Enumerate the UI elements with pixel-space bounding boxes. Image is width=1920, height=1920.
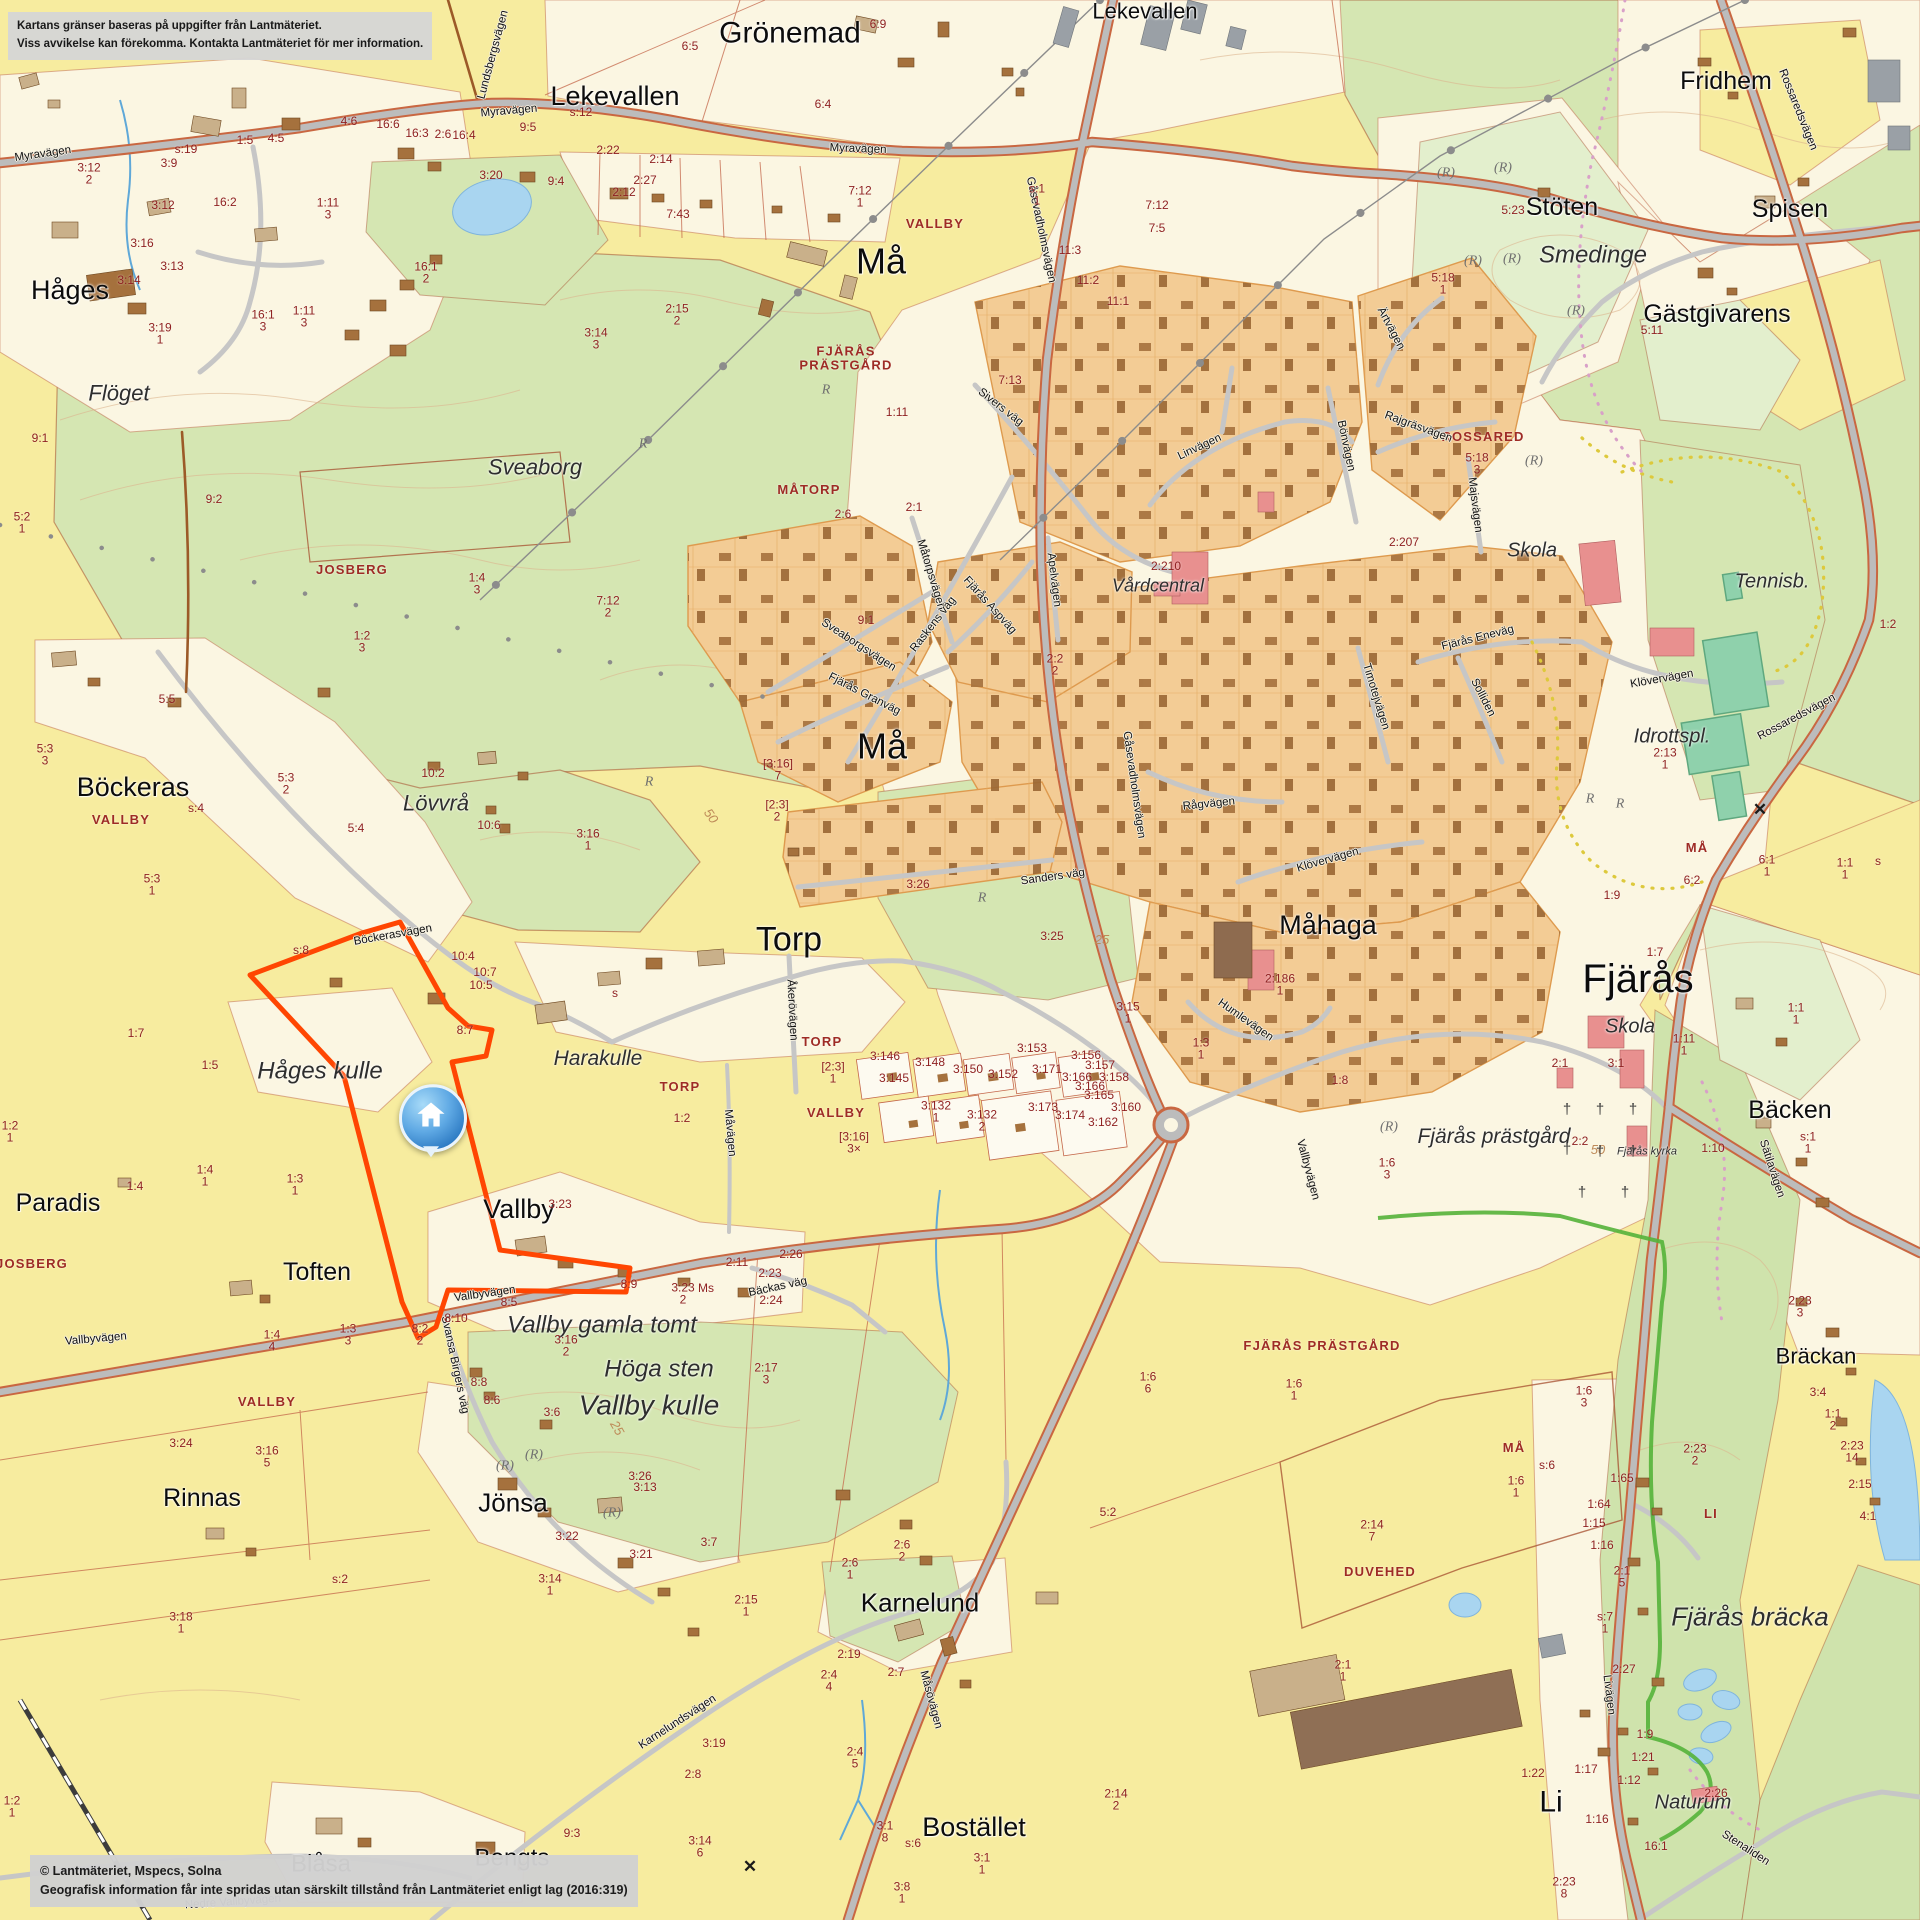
disclaimer-line-2: Viss avvikelse kan förekomma. Kontakta L… — [17, 36, 423, 54]
property-marker[interactable] — [399, 1084, 463, 1156]
disclaimer-line-1: Kartans gränser baseras på uppgifter frå… — [17, 18, 423, 36]
house-icon — [413, 1097, 449, 1133]
base-map — [0, 0, 1920, 1920]
map-viewport: GrönemadLekevallenLekevallenHågesMåMåFri… — [0, 0, 1920, 1920]
copyright-line-1: © Lantmäteriet, Mspecs, Solna — [40, 1862, 628, 1881]
copyright-line-2: Geografisk information får inte spridas … — [40, 1881, 628, 1900]
map-disclaimer: Kartans gränser baseras på uppgifter frå… — [8, 12, 432, 60]
roundabout — [1154, 1108, 1188, 1142]
map-copyright: © Lantmäteriet, Mspecs, Solna Geografisk… — [30, 1855, 638, 1907]
marker-pointer — [423, 1146, 439, 1157]
